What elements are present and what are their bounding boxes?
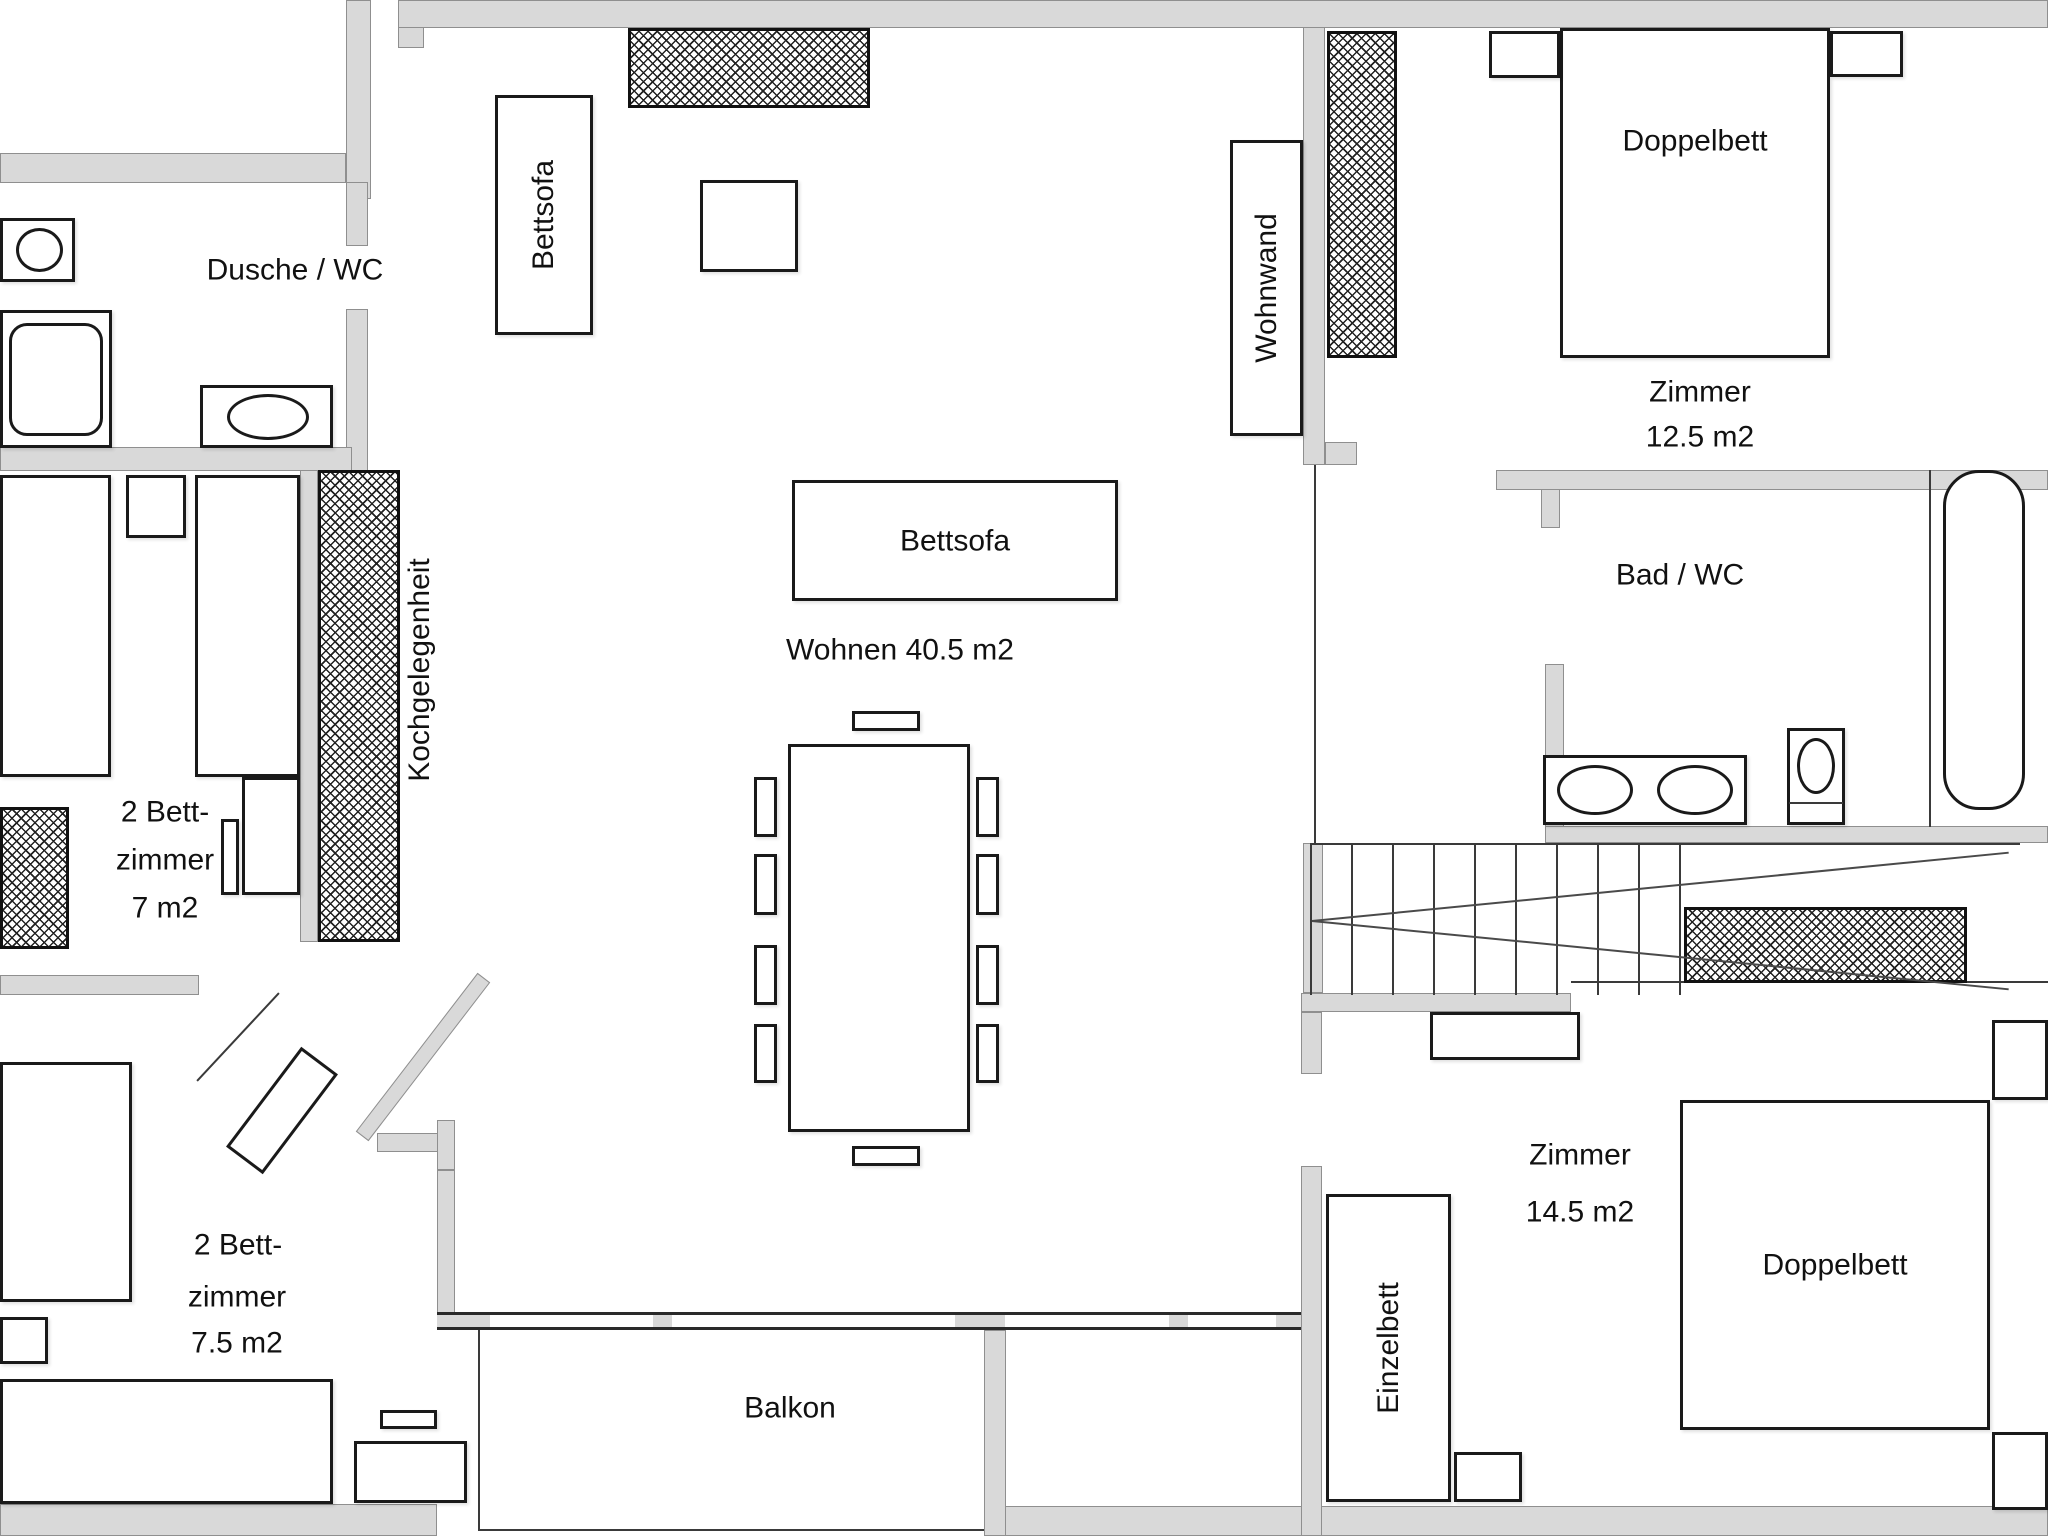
window-post [653, 1315, 672, 1327]
wall-top [398, 0, 2048, 28]
side-table [380, 1410, 437, 1429]
kitchenette-hatch [318, 470, 400, 942]
sideboard [1430, 1012, 1580, 1060]
chair [976, 945, 999, 1005]
window-post [1276, 1315, 1301, 1327]
wall-einzelzimmer-left [1301, 1166, 1322, 1536]
wohnwand-label: Wohnwand [1250, 213, 1284, 363]
sofa-side-table [700, 180, 798, 272]
washbasin-bowl [16, 228, 63, 272]
wall-bottom-right [1005, 1506, 2048, 1536]
bed [0, 1062, 132, 1302]
staircase [1310, 843, 2020, 995]
line-balcony-rail [479, 1529, 984, 1531]
room-label-zimmer125-1: Zimmer [1649, 376, 1751, 409]
bed [195, 475, 300, 777]
wall-stairs-stub [1301, 1012, 1322, 1074]
room-label-wohnen: Wohnen 40.5 m2 [786, 634, 1014, 667]
nightstand [126, 475, 186, 538]
side-table [221, 819, 239, 895]
toilet-bowl [227, 394, 309, 440]
room-label-bad-wc: Bad / WC [1616, 559, 1744, 592]
wall-wohnwand-foot [1325, 442, 1357, 465]
window-band [437, 1312, 1301, 1330]
cabinet [242, 777, 300, 895]
wall-dusche-bottom [0, 447, 352, 471]
wall-kitchen [300, 470, 318, 942]
doppelbett-top-label: Doppelbett [1622, 125, 1767, 158]
line-tub-niche [1929, 470, 1931, 827]
room-label-dusche-wc: Dusche / WC [207, 254, 384, 287]
doppelbett-bottom: Doppelbett [1680, 1100, 1990, 1430]
wall-dusche-right-a [346, 182, 368, 246]
room-label-bett7-2: zimmer [116, 844, 214, 877]
wardrobe-hatch-zimmer125 [1327, 31, 1397, 358]
wall-top-notch [398, 27, 424, 48]
wall-dusche-top [0, 153, 346, 183]
chair [852, 711, 920, 731]
bettsofa-horizontal: Bettsofa [792, 480, 1118, 601]
window-hatch-bedroom7 [0, 807, 69, 949]
bettsofa-vertical-label: Bettsofa [527, 160, 561, 270]
room-label-bett7-3: 7 m2 [132, 892, 199, 925]
chair [976, 777, 999, 837]
einzelbett: Einzelbett [1326, 1194, 1451, 1502]
wall-entry-stub [346, 0, 371, 199]
wall-bad-bottom [1545, 826, 2048, 843]
chair [852, 1146, 920, 1166]
room-label-zimmer145-1: Zimmer [1529, 1139, 1631, 1172]
toilet-bowl [1797, 738, 1835, 794]
bettsofa-horizontal-label: Bettsofa [900, 524, 1010, 557]
nightstand [1830, 31, 1903, 77]
shower-tray [9, 323, 103, 436]
chair [754, 777, 777, 837]
line-door-swing [196, 992, 279, 1081]
nightstand [1454, 1452, 1522, 1502]
chair [754, 1024, 777, 1083]
room-label-kochgelegenheit: Kochgelegenheit [403, 558, 437, 782]
nightstand [1992, 1020, 2048, 1100]
wall-wohnwand [1303, 27, 1325, 465]
wall-diagonal [356, 973, 490, 1141]
nightstand [1992, 1432, 2048, 1510]
wall-t-vertical [437, 1120, 455, 1170]
toilet-base-line [1789, 802, 1843, 804]
wohnwand: Wohnwand [1230, 140, 1303, 436]
wall-balcony-right [984, 1330, 1006, 1536]
line-balcony-left [478, 1330, 480, 1531]
line-corridor [1314, 465, 1316, 843]
chair [754, 854, 777, 915]
bed [0, 475, 111, 777]
wall-bad-left-stub [1541, 489, 1560, 528]
chair [976, 854, 999, 915]
room-label-bett7-1: 2 Bett- [121, 796, 209, 829]
room-label-zimmer125-2: 12.5 m2 [1646, 421, 1754, 454]
dining-table [788, 744, 970, 1132]
chair [754, 945, 777, 1005]
bed [0, 1379, 333, 1504]
room-label-bett75-2: zimmer [188, 1281, 286, 1314]
wall-bedroom7-bottom [0, 975, 199, 995]
bettsofa-vertical: Bettsofa [495, 95, 593, 335]
room-label-zimmer145-2: 14.5 m2 [1526, 1196, 1634, 1229]
stair-steps [1310, 845, 1684, 995]
nightstand [0, 1317, 48, 1364]
washbasin-bowl [1557, 765, 1633, 815]
doppelbett-bottom-label: Doppelbett [1762, 1249, 1907, 1282]
doppelbett-top: Doppelbett [1560, 28, 1830, 358]
chair [976, 1024, 999, 1083]
room-label-bett75-1: 2 Bett- [194, 1229, 282, 1262]
cabinet [354, 1441, 467, 1503]
floor-plan: Bettsofa Bettsofa Wohnwand Doppelbett [0, 0, 2048, 1536]
window-hatch-top [628, 28, 870, 108]
wall-stairs-bottom [1301, 993, 1571, 1012]
wall-bottom-left [0, 1504, 437, 1536]
room-label-balkon: Balkon [744, 1392, 836, 1425]
window-post [437, 1315, 490, 1327]
nightstand [1489, 31, 1560, 78]
washbasin-bowl [1657, 765, 1733, 815]
einzelbett-label: Einzelbett [1372, 1282, 1406, 1414]
door-leaf [226, 1047, 338, 1175]
room-label-bett75-3: 7.5 m2 [191, 1327, 283, 1360]
window-post [955, 1315, 1005, 1327]
window-post [1169, 1315, 1188, 1327]
wall-bedroom75-right [437, 1170, 455, 1314]
bathtub [1943, 470, 2025, 810]
